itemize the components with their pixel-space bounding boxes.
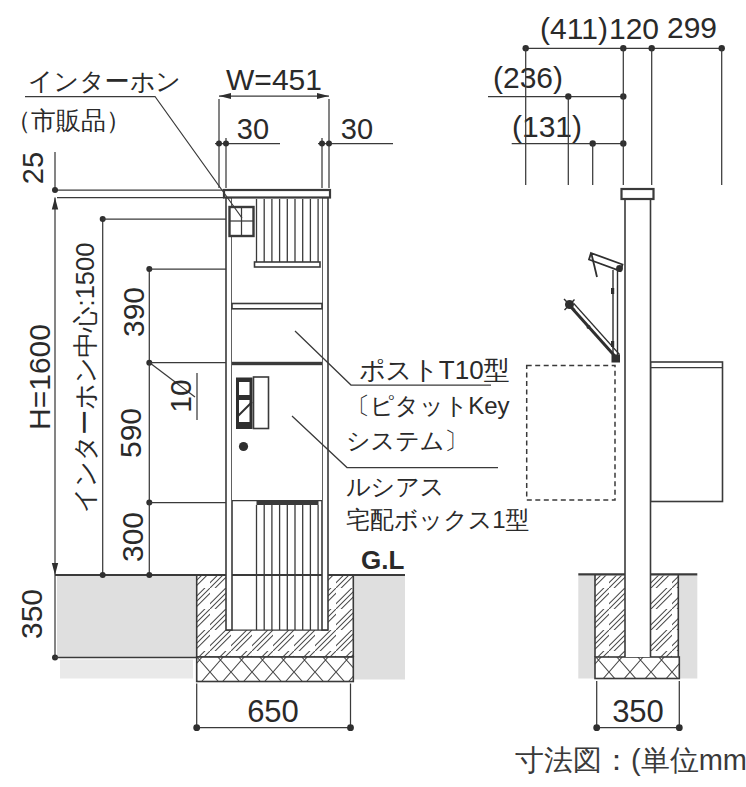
soil-left xyxy=(57,576,197,657)
dim-299-label: 299 xyxy=(667,11,717,44)
front-dim-10: 10 xyxy=(150,363,197,420)
front-dim-390: 390 xyxy=(117,266,227,366)
frame-right-column xyxy=(322,198,328,631)
drawing-caption: 寸法図：(単位mm) xyxy=(515,744,746,776)
soil-right xyxy=(353,576,406,680)
dim-30-left-label: 30 xyxy=(237,113,269,145)
product-label-line2: 宅配ボックス1型 xyxy=(346,506,530,533)
dim-390-label: 390 xyxy=(117,287,150,337)
handle-plate xyxy=(254,377,269,429)
dim-411-label: (411) xyxy=(540,12,608,45)
dim-350-side-label: 350 xyxy=(612,694,664,729)
lock-dot xyxy=(239,442,248,451)
post-model-label: ポストT10型 xyxy=(359,355,510,385)
soil-left-lower xyxy=(60,660,193,679)
front-dim-width: W=451 xyxy=(219,63,329,188)
delivery-box-handle xyxy=(236,378,253,430)
dim-10-label: 10 xyxy=(164,379,197,412)
front-dim-650: 650 xyxy=(193,684,354,732)
front-dim-height: H=1600 xyxy=(23,198,59,576)
product-label-line1: ルシアス xyxy=(346,473,444,500)
intercom-callout-line1: インターホン xyxy=(28,67,181,95)
dim-w451-label: W=451 xyxy=(226,63,322,96)
dim-590-label: 590 xyxy=(114,408,147,458)
ground-level-label: G.L xyxy=(361,545,404,575)
key-system-label-line1: 〔ピタットKey xyxy=(346,392,510,419)
dim-650-label: 650 xyxy=(247,694,299,729)
dimension-drawing-page: W=451 30 30 25 H=1600 xyxy=(0,0,746,787)
dim-300-label: 300 xyxy=(116,512,149,562)
dim-intercom-1500-label: インターホン中心:1500 xyxy=(71,243,99,514)
unit-divider xyxy=(232,362,322,365)
intercom-unit xyxy=(230,207,254,236)
door-swing-dashed xyxy=(527,366,615,501)
dim-120-label: 120 xyxy=(609,12,659,45)
intercom-callout: インターホン （市販品） xyxy=(6,67,242,218)
dim-30-right-label: 30 xyxy=(341,113,373,145)
front-dim-30-left: 30 xyxy=(215,113,280,147)
side-dim-350: 350 xyxy=(593,681,682,731)
dim-236-label: (236) xyxy=(493,61,563,94)
dimension-drawing: W=451 30 30 25 H=1600 xyxy=(0,0,746,787)
dim-h1600-label: H=1600 xyxy=(23,324,56,430)
side-box-body xyxy=(651,362,723,502)
side-pillar-cap xyxy=(622,189,654,199)
side-dims-top: (411) 120 299 (236) (131) xyxy=(488,11,725,185)
key-system-label-line2: システム〕 xyxy=(346,427,468,454)
open-lid-mechanism xyxy=(564,253,623,363)
front-view: W=451 30 30 25 H=1600 xyxy=(6,63,530,731)
intercom-callout-line2: （市販品） xyxy=(6,106,131,134)
side-view: (411) 120 299 (236) (131) 350 xyxy=(488,11,725,731)
front-dim-25: 25 xyxy=(17,152,58,193)
post-slot xyxy=(232,304,322,309)
pillar-cap xyxy=(224,190,330,198)
dim-131-label: (131) xyxy=(512,110,582,143)
frame-left-column xyxy=(226,198,232,631)
dim-350-label: 350 xyxy=(15,589,48,639)
front-dim-300: 300 xyxy=(116,503,153,579)
dim-25-label: 25 xyxy=(17,152,49,184)
